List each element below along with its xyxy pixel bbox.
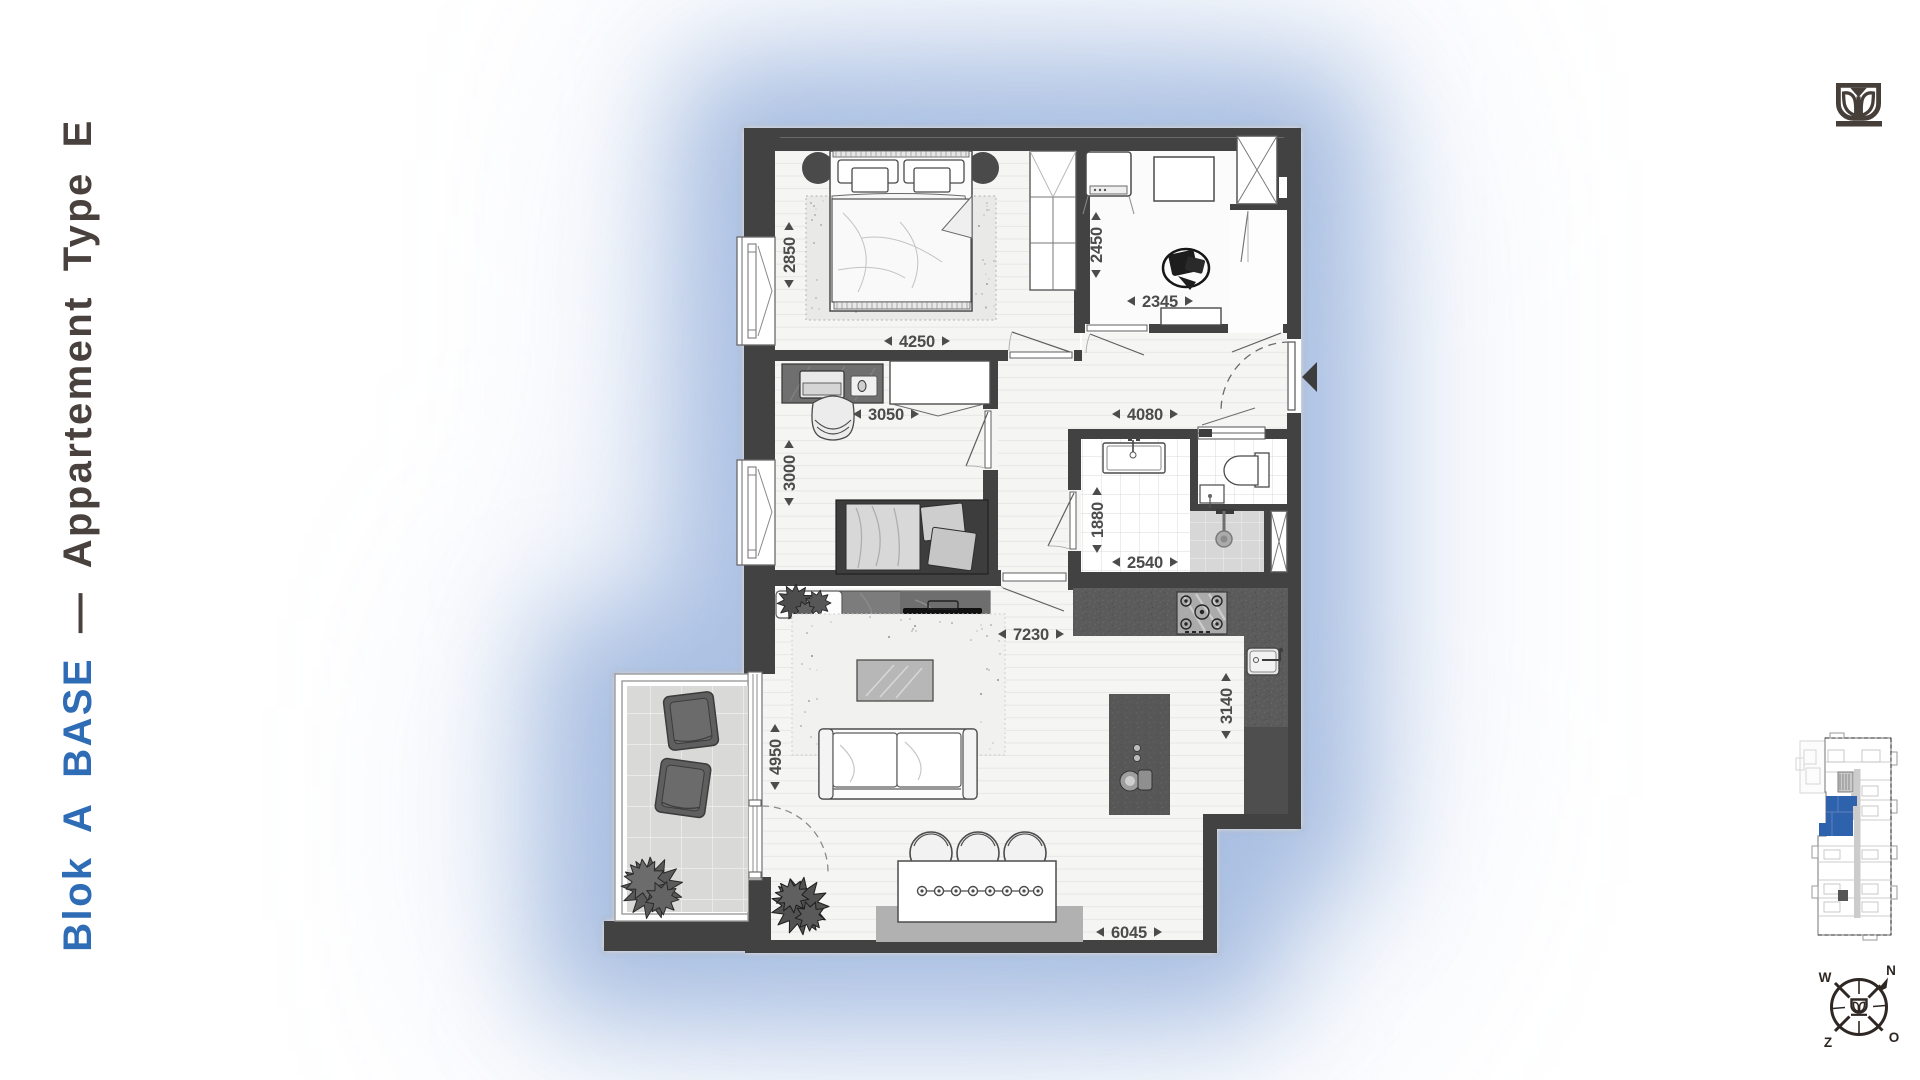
svg-text:O: O — [1889, 1030, 1900, 1045]
svg-text:4080: 4080 — [1127, 406, 1163, 424]
svg-text:2850: 2850 — [781, 237, 799, 273]
svg-text:W: W — [1819, 970, 1832, 985]
svg-text:3140: 3140 — [1218, 688, 1236, 724]
svg-text:2345: 2345 — [1142, 293, 1178, 311]
svg-text:3000: 3000 — [781, 455, 799, 491]
svg-text:4950: 4950 — [767, 739, 785, 775]
svg-text:4250: 4250 — [899, 333, 935, 351]
svg-text:6045: 6045 — [1111, 924, 1147, 942]
svg-text:2540: 2540 — [1127, 554, 1163, 572]
svg-text:3050: 3050 — [868, 406, 904, 424]
svg-text:N: N — [1886, 963, 1896, 978]
svg-text:Z: Z — [1824, 1035, 1832, 1050]
svg-text:1880: 1880 — [1089, 502, 1107, 538]
svg-text:2450: 2450 — [1088, 227, 1106, 263]
svg-text:7230: 7230 — [1013, 626, 1049, 644]
